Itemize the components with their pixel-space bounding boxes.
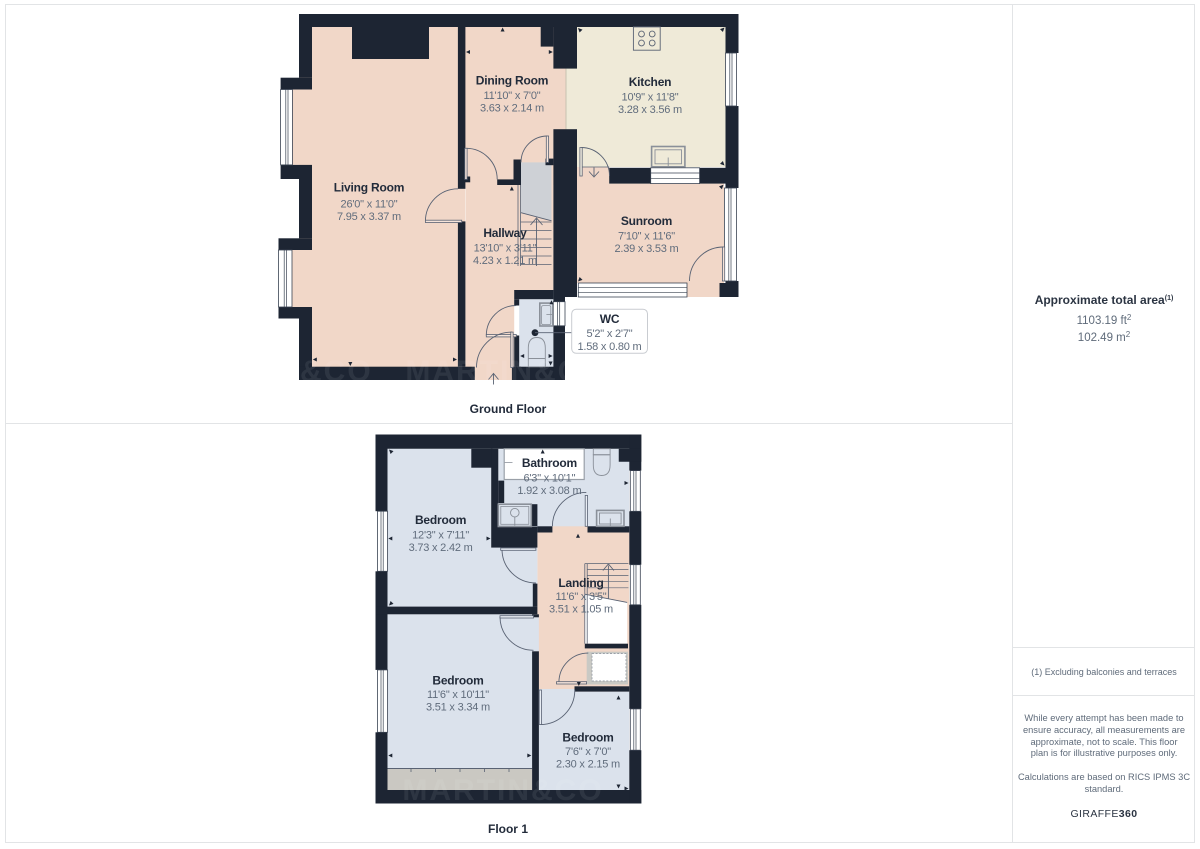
svg-text:3.63 x 2.14 m: 3.63 x 2.14 m	[480, 103, 544, 115]
svg-text:1.58 x 0.80 m: 1.58 x 0.80 m	[577, 341, 641, 353]
svg-text:1.92 x 3.08 m: 1.92 x 3.08 m	[517, 485, 581, 497]
svg-text:13'10" x 3'11": 13'10" x 3'11"	[474, 243, 537, 255]
svg-text:MARTIN&CO: MARTIN&CO	[405, 355, 606, 388]
svg-text:11'6" x 10'11": 11'6" x 10'11"	[427, 689, 489, 701]
svg-text:Ground Floor: Ground Floor	[470, 402, 547, 416]
svg-text:11'10" x 7'0": 11'10" x 7'0"	[484, 90, 541, 102]
svg-text:Living Room: Living Room	[334, 181, 404, 195]
svg-text:12'3" x 7'11": 12'3" x 7'11"	[412, 530, 469, 542]
svg-text:3.51 x 3.34 m: 3.51 x 3.34 m	[426, 702, 490, 714]
svg-text:Bedroom: Bedroom	[562, 731, 613, 745]
svg-text:Hallway: Hallway	[483, 226, 527, 240]
svg-text:Bathroom: Bathroom	[522, 456, 577, 470]
svg-text:2.39 x 3.53 m: 2.39 x 3.53 m	[614, 243, 678, 255]
svg-text:Sunroom: Sunroom	[621, 214, 672, 228]
svg-text:3.51 x 1.05 m: 3.51 x 1.05 m	[549, 604, 613, 616]
svg-text:Bedroom: Bedroom	[432, 674, 483, 688]
svg-text:3.28 x 3.56 m: 3.28 x 3.56 m	[618, 104, 682, 116]
svg-text:7.95 x 3.37 m: 7.95 x 3.37 m	[337, 211, 401, 223]
svg-text:6'3" x 10'1": 6'3" x 10'1"	[523, 473, 575, 485]
svg-text:3.73 x 2.42 m: 3.73 x 2.42 m	[409, 542, 473, 554]
svg-text:Kitchen: Kitchen	[629, 75, 672, 89]
svg-text:Landing: Landing	[558, 576, 603, 590]
svg-text:4.23 x 1.21 m: 4.23 x 1.21 m	[473, 255, 537, 267]
svg-text:7'6" x 7'0": 7'6" x 7'0"	[565, 746, 611, 758]
svg-text:WC: WC	[600, 312, 620, 326]
svg-text:26'0" x 11'0": 26'0" x 11'0"	[341, 199, 398, 211]
svg-text:Floor 1: Floor 1	[488, 822, 528, 836]
svg-text:11'6" x 3'5": 11'6" x 3'5"	[556, 591, 607, 603]
svg-text:7'10" x 11'6": 7'10" x 11'6"	[618, 231, 675, 243]
svg-text:Dining Room: Dining Room	[476, 74, 548, 88]
svg-text:2.30 x 2.15 m: 2.30 x 2.15 m	[556, 759, 620, 771]
svg-text:MARTIN&CO: MARTIN&CO	[402, 774, 603, 807]
svg-text:10'9" x 11'8": 10'9" x 11'8"	[622, 92, 679, 104]
svg-text:MARTIN&CO: MARTIN&CO	[171, 355, 372, 388]
svg-text:Bedroom: Bedroom	[415, 513, 466, 527]
svg-text:5'2" x 2'7": 5'2" x 2'7"	[587, 328, 633, 340]
